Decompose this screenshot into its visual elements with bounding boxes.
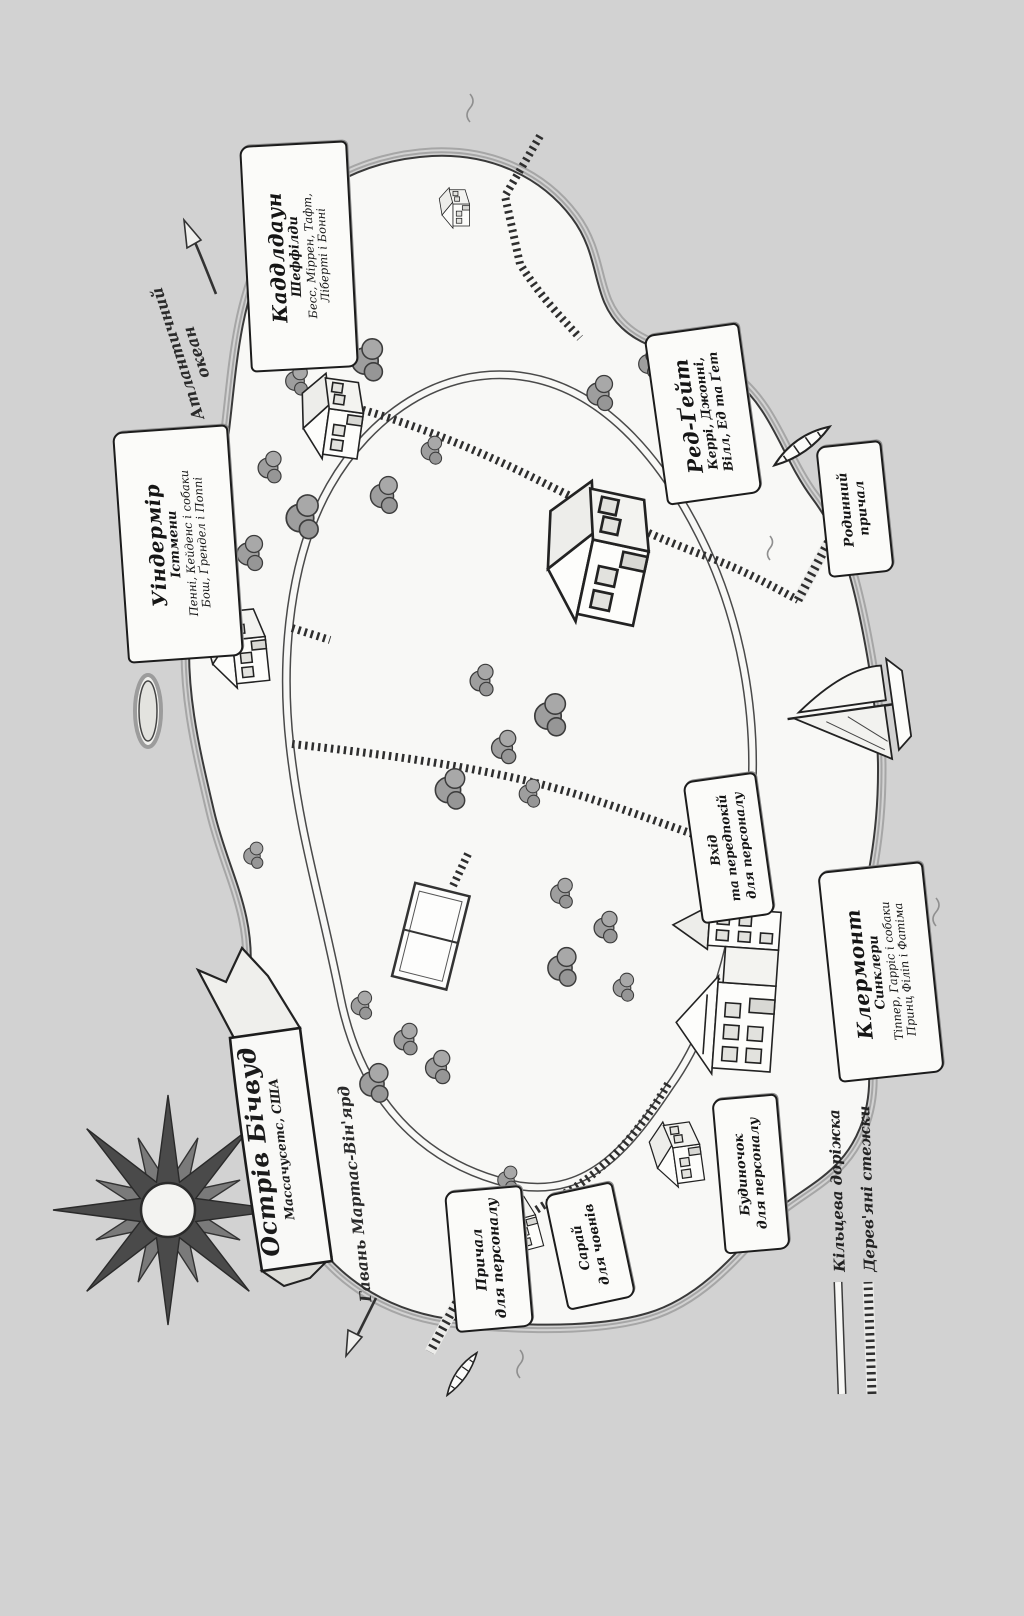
label-windemere: Уіндермір Істмени Пенні, Кейденс і собак… <box>112 424 244 664</box>
island-illustration <box>0 0 1024 1616</box>
ocean-arrow <box>184 220 216 294</box>
map-canvas: Острів Бічвуд Массачусетс, США Атлантичн… <box>0 0 1024 1616</box>
legend-ring-road-sample <box>838 1282 842 1394</box>
legend-boardwalk-sample <box>868 1282 872 1394</box>
label-staff-dock: Причал для персоналу <box>444 1185 534 1333</box>
staff-dock-boat <box>443 1350 481 1399</box>
label-family-dock: Родинний причал <box>815 440 894 578</box>
label-cuddledown: Каддлдаун Шеффілди Бесс, Міррен, Тафт, Л… <box>239 140 359 372</box>
label-clermont: Клермонт Синклери Тіппер, Гарріс і собак… <box>817 861 945 1083</box>
map-viewport: Острів Бічвуд Массачусетс, США Атлантичн… <box>0 0 1024 1616</box>
islet <box>135 675 161 747</box>
label-staff-cottage: Будиночок для персоналу <box>711 1093 790 1254</box>
